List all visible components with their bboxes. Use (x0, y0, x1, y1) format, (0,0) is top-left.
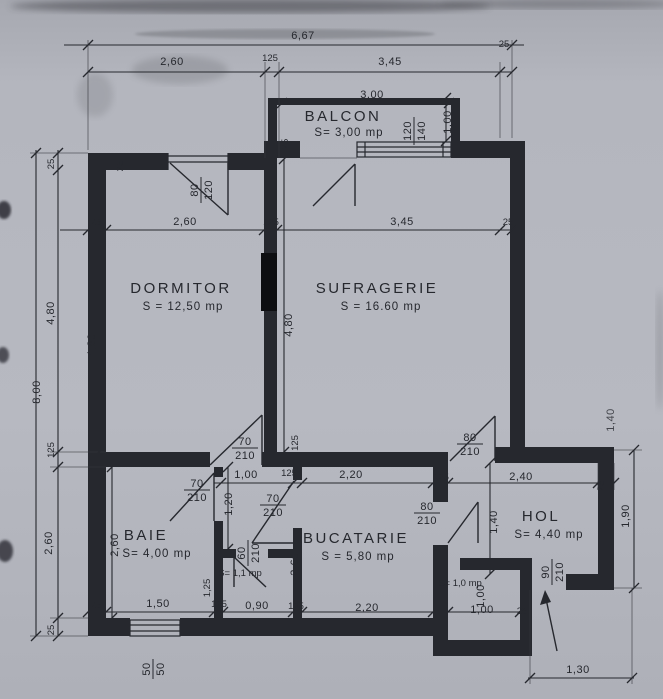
dim-bucatarie-width: 2,20 (339, 469, 362, 481)
room-area-sufragerie: S = 16.60 mp (341, 301, 422, 313)
dim-hol-right: 1,90 (620, 504, 632, 527)
dim-top-dormitor: 2,60 (160, 56, 183, 68)
dim-top-wall: 125 (262, 53, 278, 64)
dim-hol-height: 1,40 (488, 510, 500, 533)
dim-bot-wall-left: 25 (91, 600, 102, 611)
dim-corner-dormitor: 25 (115, 161, 126, 172)
dim-top-sufragerie: 3,45 (378, 56, 401, 68)
dim-bot-wall1: 125 (211, 599, 227, 610)
window-size-dormitor-w: 80 (189, 183, 201, 196)
door-size-baie-h: 210 (187, 492, 207, 504)
door-size-dormitor-h: 210 (235, 450, 255, 462)
dim-inner-right-wall: 25 (503, 217, 514, 228)
dim-inner-dormitor: 2,60 (173, 216, 196, 228)
window-size-dormitor-h: 120 (203, 180, 215, 200)
dim-inner-left-wall: 25 (91, 217, 102, 228)
dim-left-wall-top: 25 (46, 159, 57, 170)
room-label-bucatarie: BUCATARIE (303, 530, 409, 547)
dim-left-baie: 2,60 (43, 531, 55, 554)
dim-balcon-depth: 1,00 (442, 110, 454, 133)
room-label-hol: HOL (522, 508, 560, 525)
dim-hol-upper: 1,40 (605, 408, 617, 431)
dim-bucatarie-height: 2,60 (289, 552, 301, 575)
door-size-sufragerie-h: 210 (460, 446, 480, 458)
door-size-camara-w: 60 (236, 546, 248, 559)
door-size-entrance-w: 90 (540, 565, 552, 578)
door-size-baie-w: 70 (190, 478, 203, 490)
room-area-hol: S= 4,40 mp (514, 529, 583, 541)
room-area-baie: S= 4,00 mp (122, 548, 191, 560)
dim-corner-balcon: 25 (280, 139, 291, 150)
window-size-baie-h: 50 (155, 662, 167, 675)
dim-camara-width: 0,90 (245, 600, 268, 612)
door-size-vestibul-w: 70 (266, 493, 279, 505)
door-size-entrance-h: 210 (554, 562, 566, 582)
dim-vestibul-width: 1,00 (234, 469, 257, 481)
chimney-poche (261, 253, 277, 311)
dim-left-wall-bottom: 25 (46, 625, 57, 636)
dim-vest-wall: 125 (281, 468, 297, 479)
dim-left-mid-wall: 125 (46, 442, 57, 458)
window-size-balcon-w: 120 (402, 121, 414, 141)
dim-baie-width: 1,50 (146, 598, 169, 610)
dim-hol-width: 2,40 (509, 471, 532, 483)
room-label-sufragerie: SUFRAGERIE (316, 280, 439, 297)
dim-buc-wall-top: 125 (290, 435, 301, 451)
room-label-baie: BAIE (124, 527, 168, 544)
dim-hol-wall: 25 (596, 481, 607, 492)
door-size-vestibul-h: 210 (263, 507, 283, 519)
dim-debara-width: 1,00 (470, 604, 493, 616)
dim-entry-width: 1,30 (566, 664, 589, 676)
dim-baie-height: 2,60 (109, 533, 121, 556)
floor-plan-scan: BALCON S= 3,00 mp DORMITOR S = 12,50 mp … (0, 0, 663, 699)
door-size-bucatarie-w: 80 (420, 501, 433, 513)
room-area-dormitor: S = 12,50 mp (143, 301, 224, 313)
room-label-balcon: BALCON (305, 108, 382, 125)
dim-top-right-wall: 25 (499, 39, 510, 50)
dim-inner-wall: 125 (263, 217, 279, 228)
dim-bot-wall2: 125 (288, 601, 304, 612)
dim-left-dormitor: 4,80 (45, 301, 57, 324)
window-size-balcon-h: 140 (416, 121, 428, 141)
door-size-dormitor-w: 70 (238, 436, 251, 448)
room-label-dormitor: DORMITOR (130, 280, 231, 297)
dim-camara-height: 1,25 (202, 579, 213, 598)
dim-dormitor-height: 4,80 (86, 333, 98, 356)
window-size-baie-w: 50 (141, 662, 153, 675)
floor-plan-drawing: BALCON S= 3,00 mp DORMITOR S = 12,50 mp … (0, 0, 663, 699)
door-size-sufragerie-w: 80 (463, 432, 476, 444)
room-area-bucatarie: S = 5,80 mp (321, 551, 394, 563)
room-area-camara: S= 1,1 mp (218, 568, 262, 579)
dim-buc-wall2: 125 (433, 472, 449, 483)
dim-vestibul-height: 1,20 (223, 492, 235, 515)
dim-balcon-width: 3,00 (360, 89, 383, 101)
door-size-bucatarie-h: 210 (417, 515, 437, 527)
door-size-camara-h: 210 (250, 543, 262, 563)
dim-inner-sufragerie: 3,45 (390, 216, 413, 228)
dim-bot-wall3: 25 (517, 606, 528, 617)
dim-sufragerie-height: 4,80 (283, 313, 295, 336)
dim-left-total: 8,00 (31, 380, 43, 403)
room-area-balcon: S= 3,00 mp (314, 127, 383, 139)
dim-bot-bucatarie: 2,20 (355, 602, 378, 614)
dim-total-width: 6,67 (291, 30, 314, 42)
